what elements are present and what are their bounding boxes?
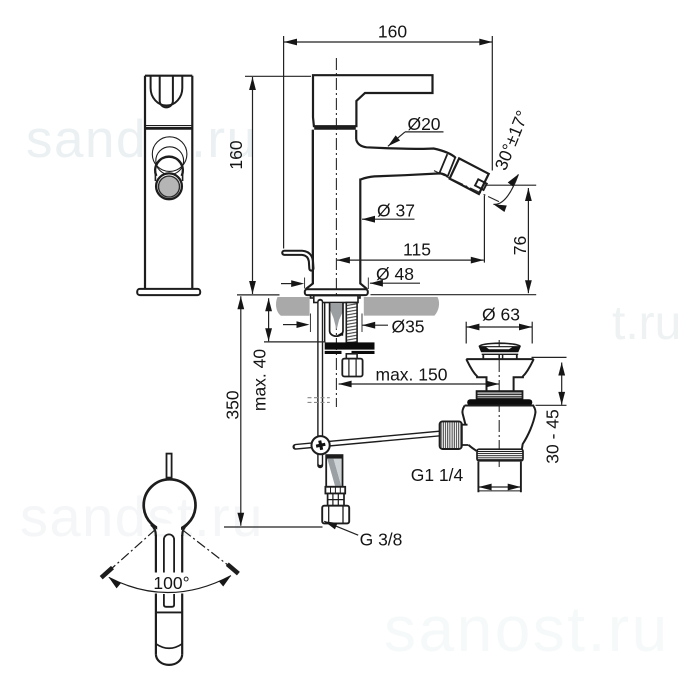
svg-text:sandst.ru: sandst.ru <box>26 110 258 169</box>
svg-text:160: 160 <box>226 140 246 169</box>
svg-text:30 - 45: 30 - 45 <box>543 409 563 463</box>
svg-text:t.ru: t.ru <box>612 297 681 350</box>
svg-text:100°: 100° <box>153 573 189 593</box>
svg-text:Ø35: Ø35 <box>391 317 424 337</box>
svg-text:G 3/8: G 3/8 <box>360 530 403 550</box>
svg-text:Ø 48: Ø 48 <box>376 264 414 284</box>
svg-text:76: 76 <box>510 236 530 255</box>
svg-text:160: 160 <box>378 22 407 42</box>
svg-text:G1 1/4: G1 1/4 <box>411 465 464 485</box>
svg-text:max. 150: max. 150 <box>376 364 448 384</box>
svg-text:115: 115 <box>403 240 431 260</box>
svg-text:Ø 37: Ø 37 <box>377 201 415 221</box>
svg-text:350: 350 <box>223 390 243 419</box>
svg-text:sandst.ru: sandst.ru <box>20 485 264 548</box>
svg-text:Ø 63: Ø 63 <box>482 305 520 325</box>
svg-text:sanost.ru: sanost.ru <box>384 593 670 665</box>
svg-text:Ø20: Ø20 <box>407 114 440 134</box>
svg-text:max. 40: max. 40 <box>250 349 270 412</box>
